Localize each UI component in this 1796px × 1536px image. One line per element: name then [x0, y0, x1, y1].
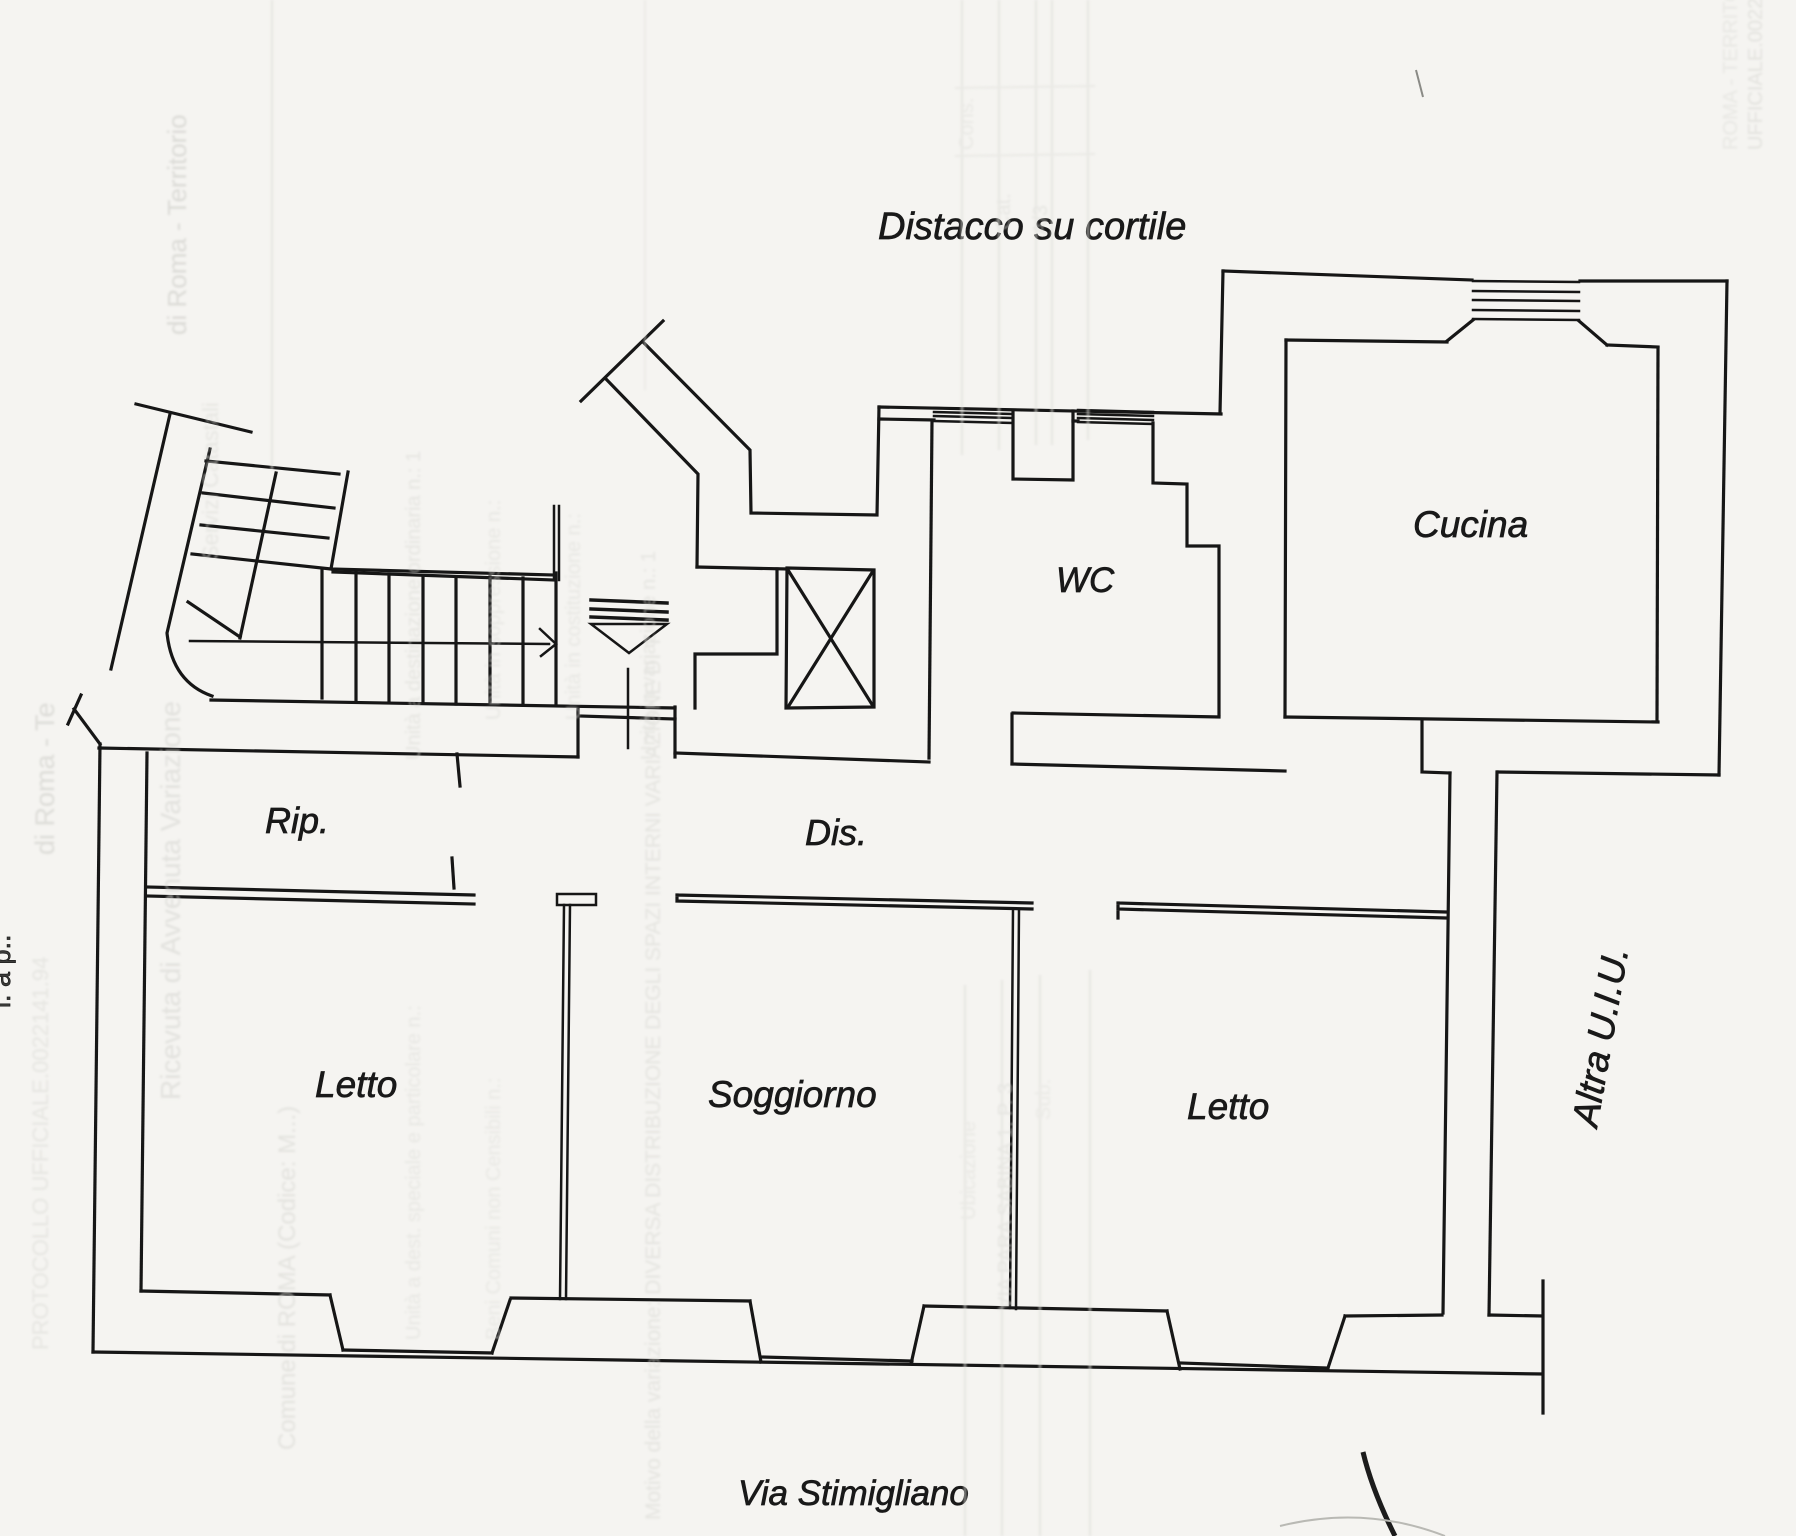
svg-text:Soggiorno: Soggiorno — [708, 1074, 877, 1115]
svg-text:Servizi Catastali: Servizi Catastali — [198, 402, 223, 560]
svg-text:Unità in soppressione n.:: Unità in soppressione n.: — [483, 500, 505, 720]
svg-text:Unità a destinazione ordinaria: Unità a destinazione ordinaria n.: 1 — [403, 451, 425, 760]
svg-text:Ricevuta di Avvenuta Variazion: Ricevuta di Avvenuta Variazione — [155, 701, 186, 1100]
svg-text:Dis.: Dis. — [805, 812, 867, 853]
svg-text:Via Stimigliano: Via Stimigliano — [738, 1474, 969, 1513]
svg-text:Cons.: Cons. — [956, 98, 978, 150]
svg-text:i. a p..: i. a p.. — [0, 934, 16, 1008]
svg-text:WC: WC — [1056, 561, 1115, 600]
svg-text:VIA PARA SABINA 1, P. 3: VIA PARA SABINA 1, P. 3 — [995, 1083, 1017, 1310]
svg-text:Motivo della variazione: DIVER: Motivo della variazione: DIVERSA DISTRIB… — [642, 635, 665, 1520]
svg-text:Ubicazione: Ubicazione — [958, 1121, 980, 1220]
svg-text:ROMA - TERRITORIO: ROMA - TERRITORIO — [1720, 0, 1742, 150]
svg-text:A/3: A/3 — [1030, 205, 1052, 235]
svg-text:UFFICIALE.0022141.9: UFFICIALE.0022141.9 — [1745, 0, 1767, 150]
svg-text:Letto: Letto — [1187, 1086, 1269, 1127]
svg-text:Letto: Letto — [315, 1064, 397, 1105]
svg-text:PROTOCOLLO UFFICIALE.0022141.9: PROTOCOLLO UFFICIALE.0022141.94 — [28, 957, 53, 1350]
svg-text:Unità in costituzione n.:: Unità in costituzione n.: — [563, 513, 585, 720]
svg-text:Cucina: Cucina — [1413, 504, 1528, 545]
svg-text:Beni Comuni non Censibili n.:: Beni Comuni non Censibili n.: — [483, 1078, 505, 1340]
svg-text:Unità a dest. speciale e parti: Unità a dest. speciale e particolare n.: — [403, 1005, 425, 1340]
svg-text:Sub.: Sub. — [1033, 1079, 1055, 1120]
svg-text:di Roma - Te: di Roma - Te — [30, 702, 60, 855]
svg-text:Comune di ROMA (Codice: M...): Comune di ROMA (Codice: M...) — [274, 1106, 301, 1450]
svg-text:Cat.: Cat. — [993, 193, 1015, 230]
svg-text:di Roma - Territorio: di Roma - Territorio — [162, 114, 192, 335]
svg-text:Rip.: Rip. — [265, 800, 329, 841]
